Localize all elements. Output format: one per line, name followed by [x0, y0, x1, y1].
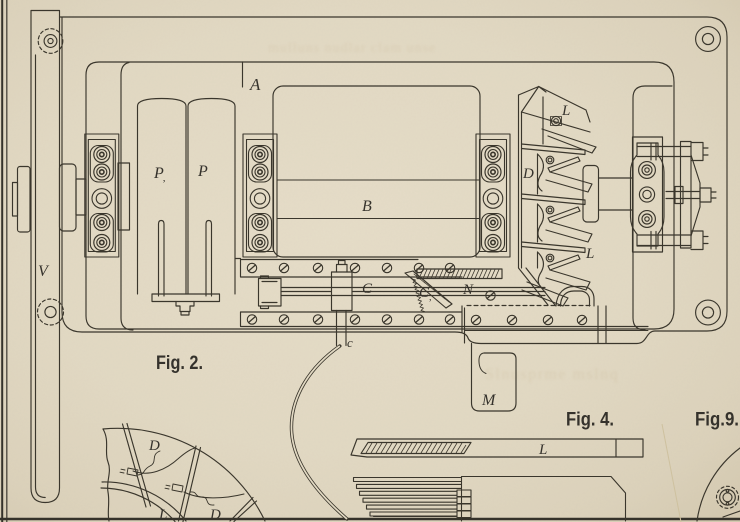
svg-text:A: A: [249, 75, 261, 94]
svg-text:Fig.9.: Fig.9.: [695, 410, 739, 431]
svg-text:D: D: [148, 438, 160, 454]
svg-text:M: M: [481, 392, 497, 409]
svg-text:mulluns nudlar clam unse: mulluns nudlar clam unse: [268, 41, 436, 56]
svg-text:Fig. 2.: Fig. 2.: [156, 353, 203, 374]
svg-text:L: L: [158, 507, 167, 522]
svg-text:L: L: [561, 103, 570, 119]
svg-text:L: L: [538, 442, 547, 458]
svg-text:L: L: [585, 246, 594, 262]
svg-text:P: P: [197, 163, 208, 180]
svg-text:c: c: [347, 335, 353, 350]
svg-text:D: D: [522, 166, 534, 182]
svg-text:N: N: [462, 282, 474, 298]
svg-text:C: C: [362, 281, 373, 297]
svg-text:D: D: [209, 507, 221, 522]
svg-text:Slnusprme mslnq: Slnusprme mslnq: [485, 366, 619, 383]
svg-text:Fig. 4.: Fig. 4.: [566, 410, 614, 431]
svg-text:B: B: [362, 198, 372, 215]
